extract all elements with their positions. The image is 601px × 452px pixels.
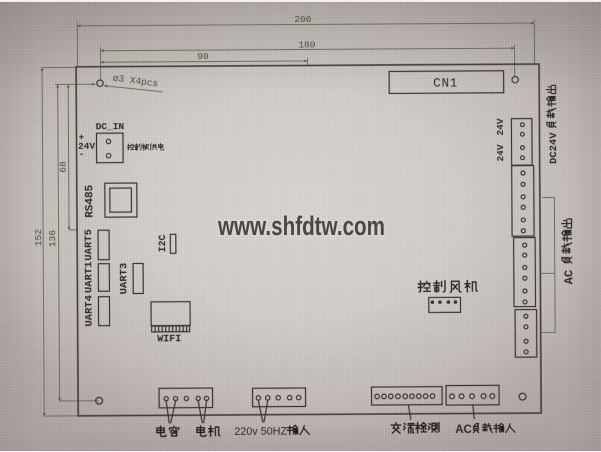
svg-text:AC: AC: [562, 270, 576, 284]
svg-text:24V: 24V: [495, 144, 506, 161]
svg-text:www.shfdtw.com: www.shfdtw.com: [217, 211, 385, 241]
svg-text:136: 136: [47, 230, 58, 247]
svg-text:DC24V: DC24V: [548, 132, 560, 164]
svg-text:180: 180: [298, 39, 315, 50]
svg-text:UART5: UART5: [83, 229, 95, 261]
svg-text:24V: 24V: [495, 118, 506, 135]
svg-text:152: 152: [33, 229, 44, 246]
svg-text:90: 90: [197, 51, 209, 62]
svg-text:UART4: UART4: [83, 295, 95, 327]
svg-text:220v 50HZ: 220v 50HZ: [234, 426, 287, 438]
svg-text:UART1: UART1: [83, 261, 95, 293]
svg-text:200: 200: [294, 14, 311, 25]
svg-text:68: 68: [58, 161, 69, 173]
svg-text:WIFI: WIFI: [157, 334, 181, 345]
svg-text:RS485: RS485: [84, 184, 96, 217]
svg-text:I2C: I2C: [157, 234, 168, 252]
svg-text:DC_IN: DC_IN: [96, 121, 125, 132]
svg-text:AC: AC: [455, 424, 472, 436]
svg-text:-: -: [79, 150, 84, 160]
svg-text:CN1: CN1: [433, 77, 458, 91]
svg-text:UART3: UART3: [118, 263, 130, 295]
